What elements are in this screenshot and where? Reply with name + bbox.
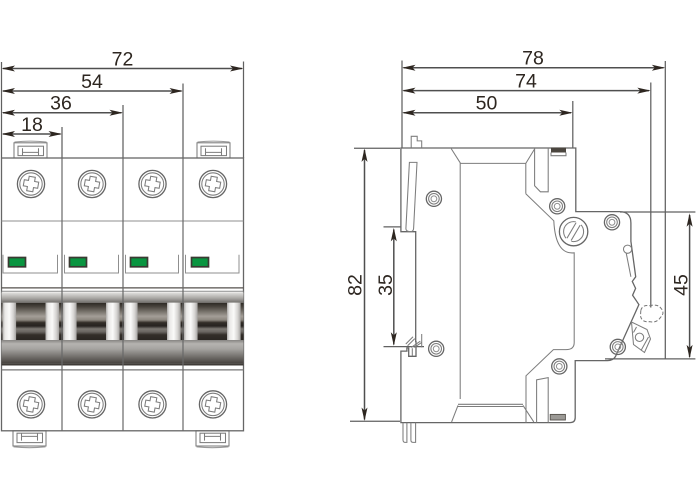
svg-text:74: 74 <box>515 70 537 92</box>
svg-text:18: 18 <box>21 114 43 136</box>
svg-text:82: 82 <box>344 274 366 296</box>
svg-text:50: 50 <box>476 93 498 115</box>
svg-text:54: 54 <box>81 71 103 93</box>
svg-text:72: 72 <box>112 48 134 70</box>
svg-text:35: 35 <box>375 274 397 296</box>
svg-text:78: 78 <box>522 48 544 70</box>
svg-text:36: 36 <box>50 93 72 115</box>
svg-text:45: 45 <box>671 274 693 296</box>
